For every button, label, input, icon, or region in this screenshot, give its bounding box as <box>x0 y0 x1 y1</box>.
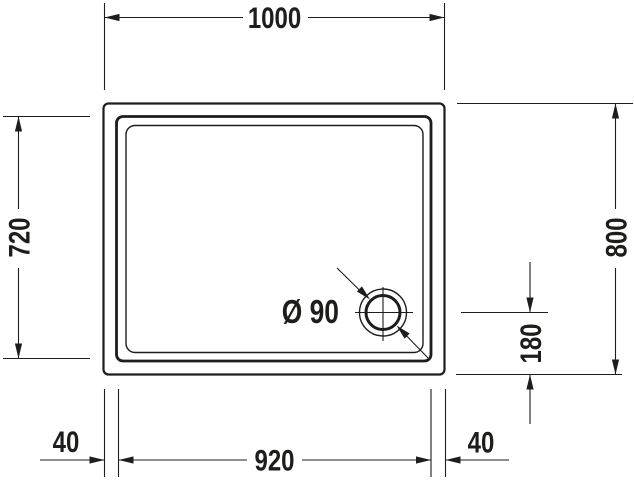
dim-label-margin-left: 40 <box>53 424 80 458</box>
dim-label-drain-offset: 180 <box>513 323 547 363</box>
dim-label-left-depth: 720 <box>2 217 36 257</box>
drain-diameter-label: Ø 90 <box>282 294 339 330</box>
drawing-background <box>0 0 634 480</box>
dim-label-margin-right: 40 <box>468 425 495 459</box>
shower-tray-technical-drawing: 1000 720 800 180 40 920 40 Ø 90 <box>0 0 634 480</box>
dim-label-top-width: 1000 <box>248 0 301 34</box>
dim-label-right-height: 800 <box>599 217 633 257</box>
dim-label-inner-width: 920 <box>254 443 294 477</box>
